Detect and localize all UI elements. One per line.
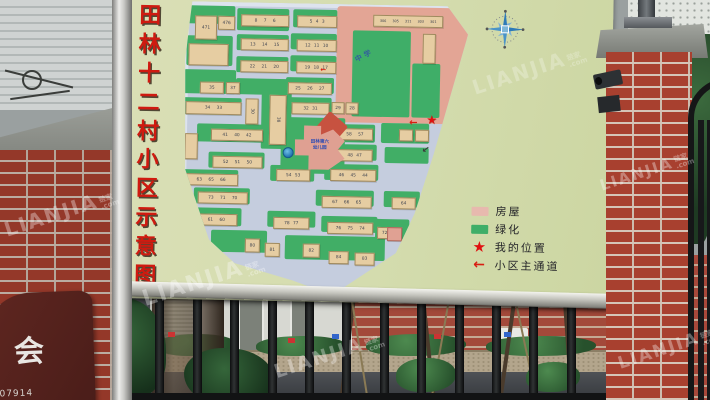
- map-building: 5 4 3: [297, 15, 337, 28]
- fence-bar: [342, 288, 351, 400]
- legend-label: 房屋: [495, 203, 521, 219]
- fence-bar: [417, 288, 426, 400]
- map-building: 80: [245, 238, 260, 252]
- map-building: [387, 227, 402, 241]
- map-building: 12 11 10: [297, 39, 337, 52]
- kindergarten-label: 田林第六幼儿园: [291, 139, 349, 152]
- map-building: 83: [354, 252, 374, 265]
- barbed-wire-coil: [22, 70, 42, 90]
- map-building: 63 65 66: [184, 173, 238, 186]
- small-flag: [288, 338, 295, 343]
- map-building: 37: [226, 82, 240, 94]
- passage-arrow-icon: ←: [320, 67, 326, 74]
- small-flag: [168, 332, 175, 337]
- left-maroon-sign: 会 07914: [0, 290, 96, 400]
- map-building: 54 53: [276, 169, 310, 182]
- small-flag: [332, 334, 339, 339]
- map-building: 81: [265, 243, 280, 257]
- fence-bar: [230, 288, 239, 400]
- fence-bottom-rail: [96, 393, 612, 400]
- pole-bracket: [624, 17, 672, 28]
- map-building: [399, 129, 413, 141]
- map-building: 22 21 20: [240, 60, 288, 73]
- map-building: 19 18 17: [296, 61, 336, 74]
- map-building: [415, 130, 429, 142]
- map-building: 38: [269, 95, 287, 145]
- small-flag: [504, 332, 511, 337]
- map-building: 30: [245, 98, 258, 124]
- map-building: 35: [200, 81, 224, 93]
- legend-label: 小区主通道: [494, 257, 559, 274]
- map-building: [188, 43, 228, 66]
- map-building: [422, 34, 436, 64]
- map-building: 76 75 74: [327, 222, 373, 235]
- fence-bar: [305, 288, 314, 400]
- junction-box: [597, 95, 621, 113]
- community-map-board: 田林十二村小区示意图 田林东路 4714768 7 65 4 3306 305 …: [120, 0, 614, 307]
- map-building: 25 26 27: [288, 82, 332, 95]
- house-swatch-icon: [471, 206, 488, 215]
- title-character: 村: [137, 120, 159, 142]
- map-building: 32 31: [291, 102, 329, 115]
- green-swatch-icon: [471, 224, 488, 233]
- title-character: 十: [138, 62, 160, 84]
- map-building: 41 40 42: [211, 129, 263, 142]
- board-title-vertical: 田林十二村小区示意图: [126, 4, 169, 287]
- legend-label: 我的位置: [495, 239, 547, 256]
- map-building: 28: [345, 102, 358, 114]
- map-building: 29: [331, 102, 344, 114]
- fence-bar: [193, 288, 202, 400]
- main-passage-arrow-icon: ←: [409, 118, 418, 128]
- community-map: 4714768 7 65 4 3306 305 311 303 30113 14…: [180, 1, 472, 298]
- map-building: 471: [195, 15, 217, 39]
- school-green-area: [411, 64, 440, 119]
- title-character: 小: [136, 149, 158, 171]
- map-building: 34 33: [185, 101, 241, 115]
- map-legend: 房屋 绿化 ★ 我的位置 ← 小区主通道: [470, 203, 601, 277]
- fence-bar: [380, 288, 389, 400]
- bush: [486, 336, 596, 356]
- legend-item-house: 房屋: [471, 203, 601, 221]
- legend-label: 绿化: [495, 221, 521, 237]
- fence-bar: [268, 288, 277, 400]
- map-building: 82: [303, 243, 320, 257]
- map-building: [184, 133, 197, 159]
- legend-item-passage: ← 小区主通道: [470, 257, 600, 275]
- map-building: 78 77: [273, 217, 309, 230]
- title-character: 二: [137, 91, 159, 113]
- small-flag: [434, 334, 441, 339]
- title-character: 田: [139, 4, 161, 26]
- sign-character: 会: [13, 326, 45, 371]
- legend-item-location: ★ 我的位置: [471, 239, 601, 257]
- legend-item-green: 绿化: [471, 221, 601, 239]
- fence-bar: [155, 288, 164, 400]
- star-icon: ★: [471, 239, 488, 254]
- my-location-star-icon: ★: [426, 114, 437, 126]
- title-character: 意: [135, 235, 157, 257]
- sign-number: 07914: [0, 388, 33, 399]
- title-character: 示: [135, 206, 157, 228]
- map-building: 8 7 6: [241, 14, 289, 27]
- title-character: 区: [136, 177, 158, 199]
- map-building: 476: [218, 16, 235, 30]
- photo-of-community-map-sign: 田林十二村小区示意图 田林东路 4714768 7 65 4 3306 305 …: [0, 0, 710, 400]
- map-building: 52 51 50: [212, 156, 262, 169]
- gate-bar: [698, 120, 704, 400]
- map-building: 306 305 311 303 301: [373, 15, 443, 28]
- map-building: 67 66 65: [322, 196, 372, 209]
- map-building: 13 14 15: [241, 38, 289, 51]
- metal-pole: [112, 0, 132, 400]
- left-arrow-icon: ←: [470, 258, 487, 272]
- school-green-area: [351, 30, 411, 117]
- map-building: 73 71 70: [198, 191, 248, 204]
- title-character: 林: [138, 33, 160, 55]
- map-building: 46 45 44: [330, 169, 376, 182]
- map-building: 84: [329, 251, 349, 264]
- map-building: 62 61 60: [183, 213, 237, 226]
- map-building: 64: [392, 197, 416, 209]
- compass-rose-icon: [485, 9, 526, 54]
